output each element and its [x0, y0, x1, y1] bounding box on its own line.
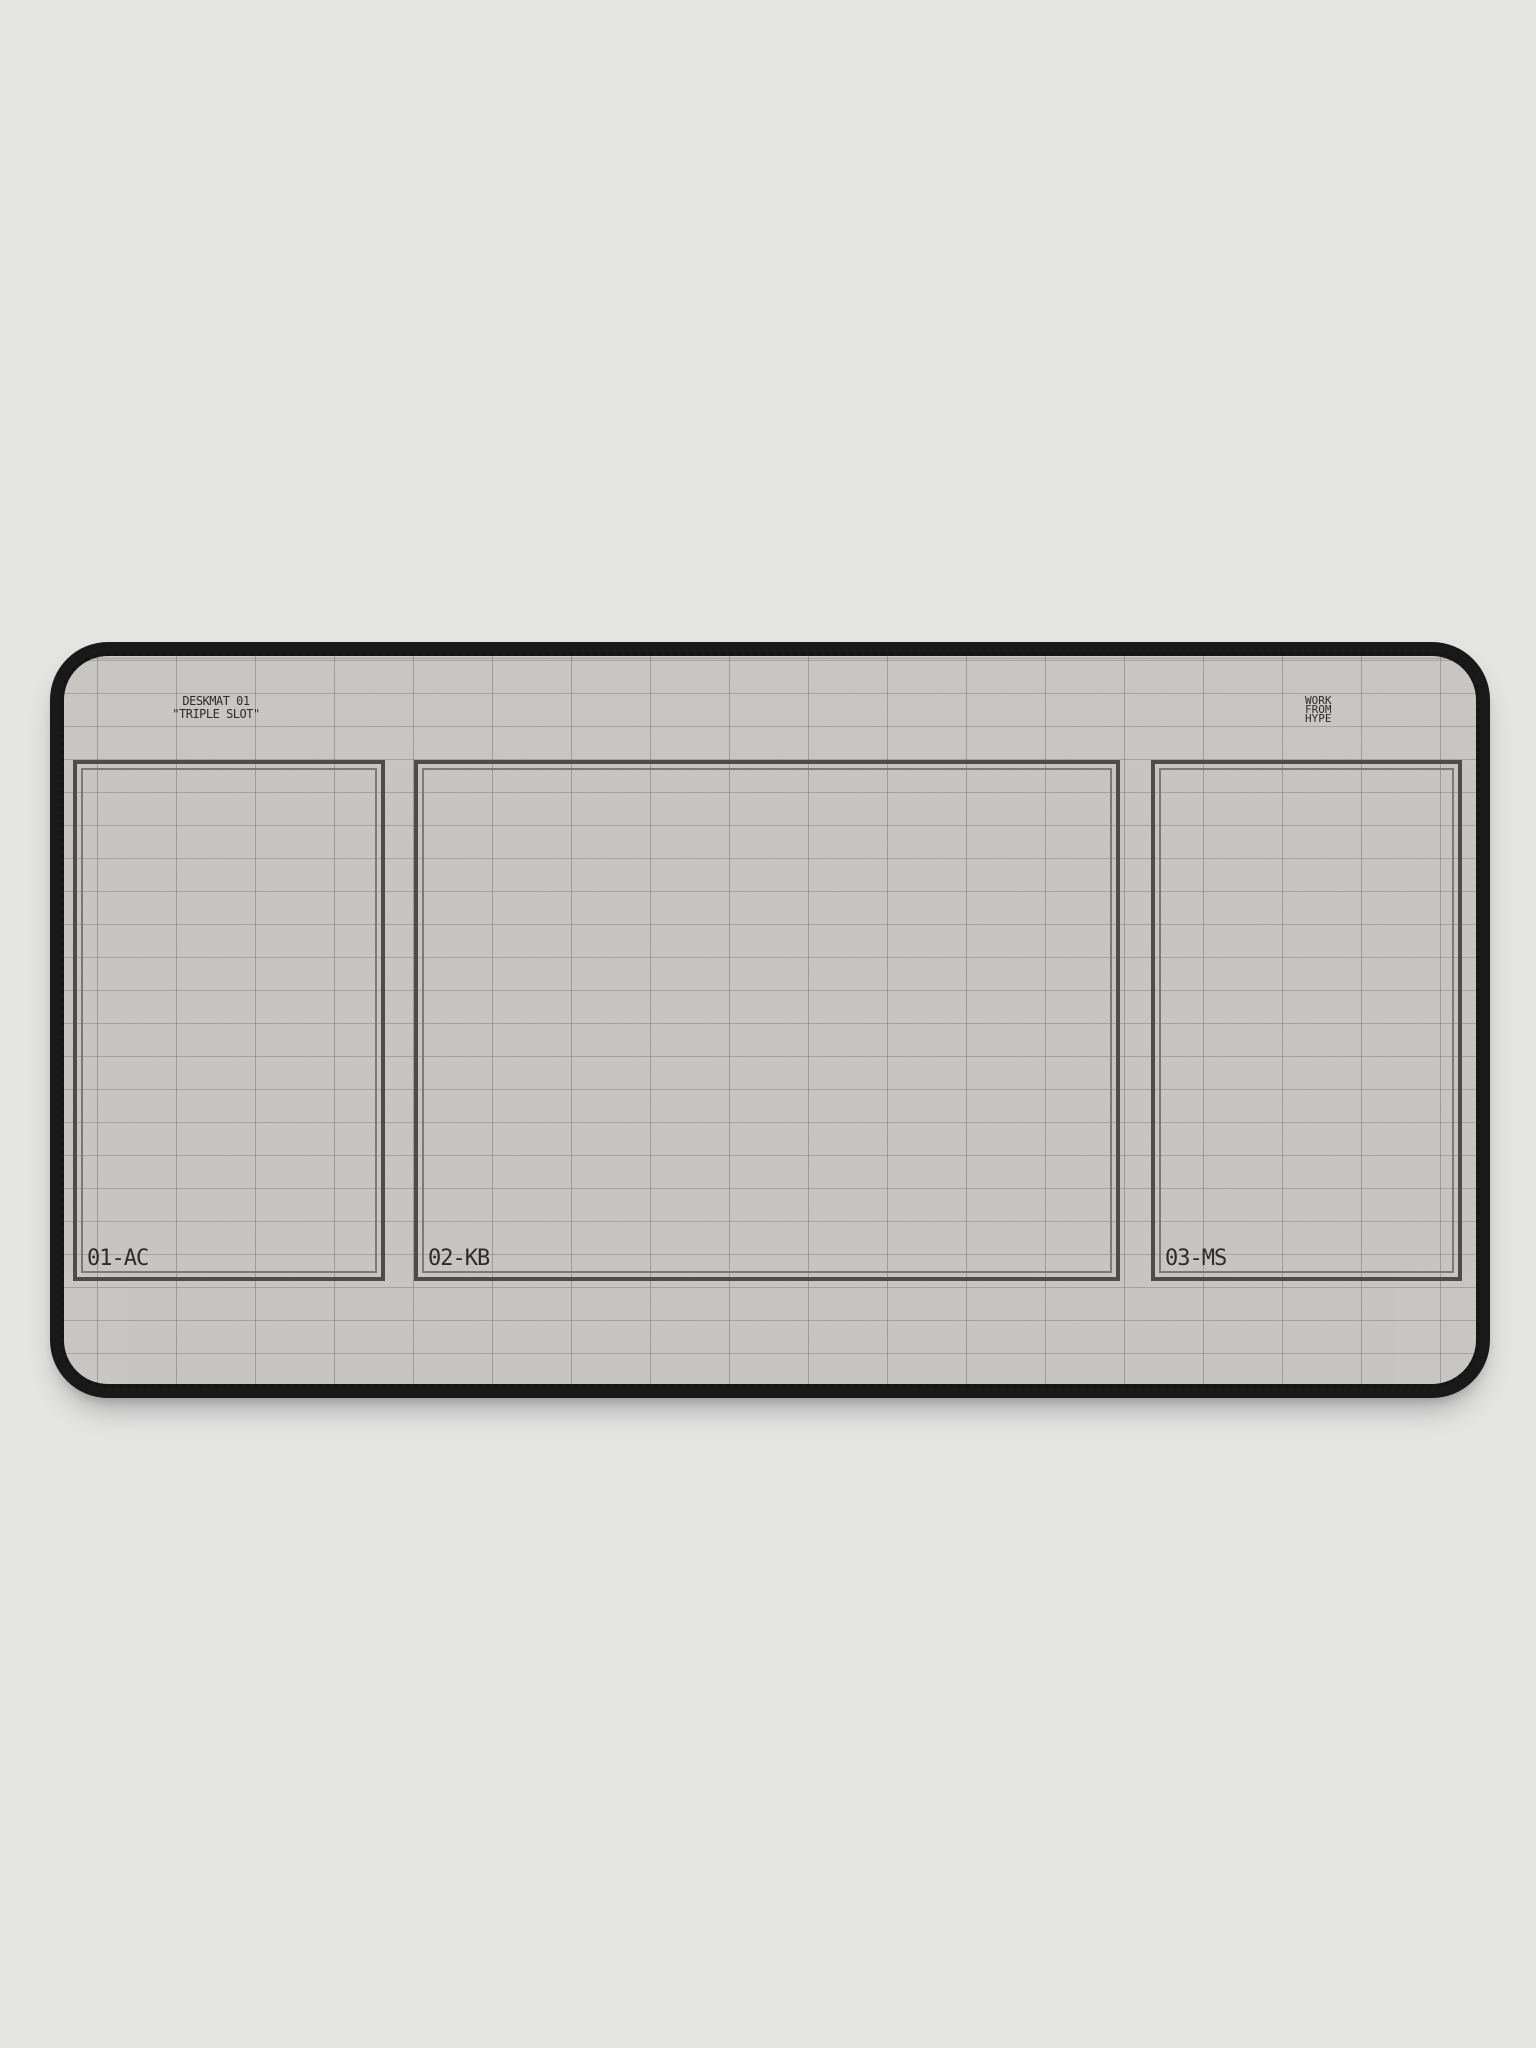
- product-title: DESKMAT 01 "TRIPLE SLOT": [146, 695, 286, 721]
- slot-zone-01-inner-frame: 01-AC: [81, 768, 377, 1273]
- zone-label: 02-KB: [428, 1247, 489, 1271]
- slot-zone-03-inner-frame: 03-MS: [1159, 768, 1454, 1273]
- slot-zone-03-ms: 03-MS: [1151, 760, 1462, 1281]
- product-photo-background: DESKMAT 01 "TRIPLE SLOT" WORK FROM HYPE …: [0, 0, 1536, 2048]
- slot-zone-02-inner-frame: 02-KB: [422, 768, 1112, 1273]
- brand-logo: WORK FROM HYPE: [1305, 696, 1332, 723]
- brand-logo-line3: HYPE: [1305, 714, 1332, 723]
- slot-zone-01-ac: 01-AC: [73, 760, 385, 1281]
- zone-label: 01-AC: [87, 1247, 148, 1271]
- desk-mat: DESKMAT 01 "TRIPLE SLOT" WORK FROM HYPE …: [50, 642, 1490, 1398]
- zone-label: 03-MS: [1165, 1247, 1226, 1271]
- slot-zone-02-kb: 02-KB: [414, 760, 1120, 1281]
- mat-fabric-surface: DESKMAT 01 "TRIPLE SLOT" WORK FROM HYPE …: [64, 656, 1476, 1384]
- product-title-line2: "TRIPLE SLOT": [146, 708, 286, 721]
